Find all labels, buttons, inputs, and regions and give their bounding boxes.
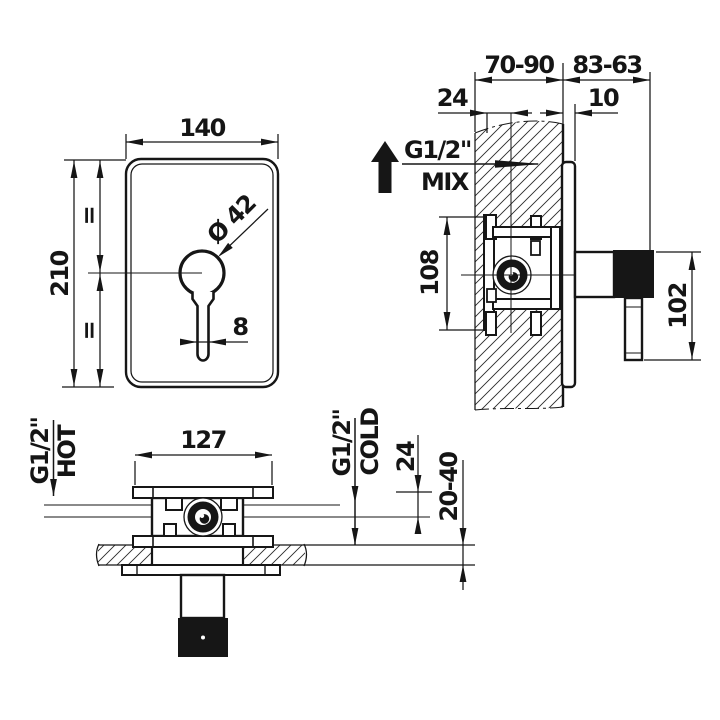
dim-label-port-depth: 24 <box>392 441 420 472</box>
dim-label-wall-depth: 70-90 <box>484 51 554 79</box>
equal-mark-top: = <box>75 207 103 226</box>
dim-label-wall-thickness: 20-40 <box>435 452 463 522</box>
technical-drawing: 140 210 = = Ø 42 <box>0 0 720 720</box>
mix-thread-label: G1/2" <box>404 136 471 164</box>
dim-label-plate-width: 140 <box>179 114 225 142</box>
flow-up-arrow-stem <box>379 162 392 193</box>
dim-label-handle-length: 102 <box>664 283 692 329</box>
dim-label-plate-offset: 10 <box>588 84 619 112</box>
cold-thread-label: G1/2" <box>328 410 356 477</box>
side-knob <box>613 250 654 298</box>
bottom-inlet-port <box>184 498 222 536</box>
dim-label-plate-height: 210 <box>46 250 74 296</box>
dim-label-lever-width: 8 <box>232 313 248 341</box>
dim-label-handle-projection: 83-63 <box>572 51 641 79</box>
dim-label-center-inset: 24 <box>437 84 468 112</box>
hot-thread-label: G1/2" <box>26 418 54 485</box>
bottom-knob-center-dot <box>201 636 205 640</box>
side-lever <box>625 298 642 360</box>
mix-label: MIX <box>421 168 470 196</box>
dim-label-bracket-height: 108 <box>416 249 444 295</box>
dim-label-bracket-width: 127 <box>180 426 226 454</box>
side-cartridge <box>575 252 614 297</box>
equal-mark-bottom: = <box>75 322 103 341</box>
bottom-lever-stem <box>181 575 224 618</box>
drawing-page: 140 210 = = Ø 42 <box>0 0 720 720</box>
hot-label: HOT <box>53 424 81 478</box>
cold-label: COLD <box>356 408 384 476</box>
